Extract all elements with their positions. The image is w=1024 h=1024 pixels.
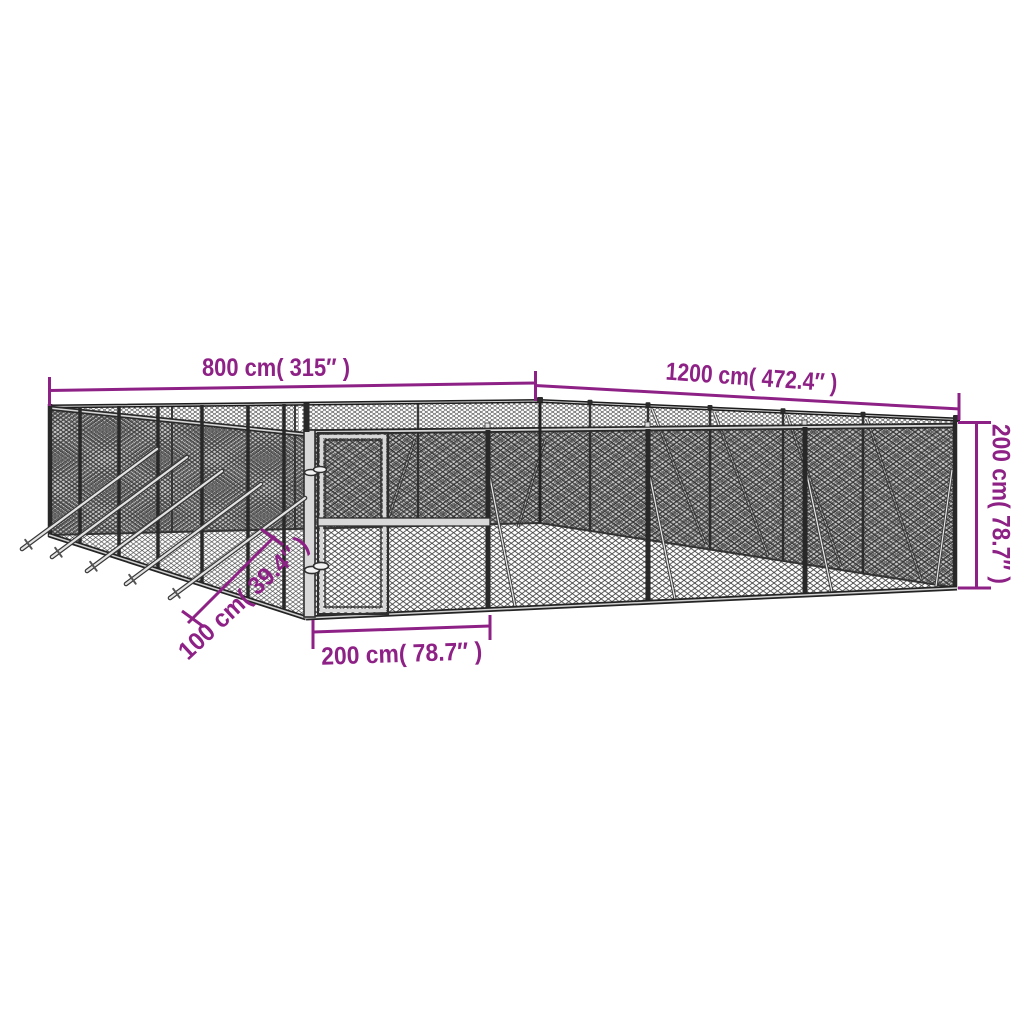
svg-text:1200 cm( 472.4″ ): 1200 cm( 472.4″ ) <box>665 358 839 398</box>
svg-text:200 cm( 78.7″ ): 200 cm( 78.7″ ) <box>987 424 1015 584</box>
svg-text:200 cm( 78.7″ ): 200 cm( 78.7″ ) <box>321 637 483 671</box>
svg-text:800 cm( 315″ ): 800 cm( 315″ ) <box>202 354 350 382</box>
